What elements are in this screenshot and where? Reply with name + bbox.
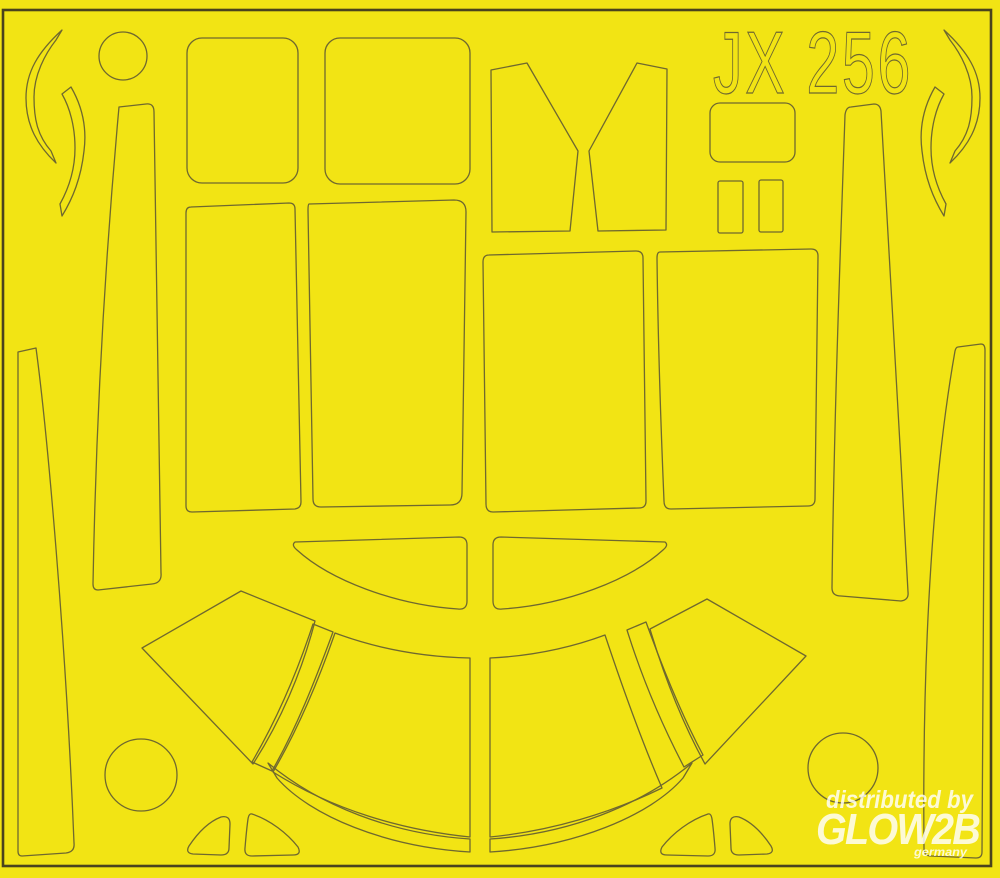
mask-piece-foot-3 [661, 814, 715, 856]
mask-piece-crescent-right-inner [921, 87, 946, 216]
mask-piece-strip-far-left [18, 348, 74, 856]
mask-piece-square-top-2 [325, 38, 470, 184]
mask-piece-strip-far-right [924, 344, 985, 858]
mask-piece-pillar-left [252, 624, 333, 771]
watermark-brand-country: germany [913, 845, 968, 859]
mask-piece-crescent-left-inner [60, 87, 85, 216]
mask-piece-foot-2 [245, 814, 299, 856]
mask-piece-pillar-right [627, 622, 703, 767]
mask-piece-small-rect-2 [759, 180, 783, 232]
mask-piece-circle-top-left [99, 32, 147, 80]
mask-piece-eyebrow-left [293, 537, 467, 609]
mask-piece-circle-bottom-left [105, 739, 177, 811]
mask-piece-eyebrow-right [493, 537, 667, 609]
mask-piece-strip-left-tall [93, 104, 161, 590]
mask-piece-rect-large-3 [483, 251, 646, 512]
mask-piece-foot-4 [730, 817, 772, 855]
mask-piece-thin-arc-right [490, 763, 692, 852]
mask-piece-crescent-right-outer [944, 30, 980, 163]
mask-sheet-graphic: JX 256 distributed by GLOW2B germany [0, 0, 1000, 878]
distributor-watermark: distributed by GLOW2B germany [816, 786, 980, 859]
mask-piece-rect-large-1 [186, 203, 301, 512]
mask-piece-windscreen-right-half [589, 63, 667, 231]
mask-piece-small-rect-1 [718, 181, 743, 233]
mask-piece-crescent-left-outer [26, 30, 62, 163]
mask-piece-segment-center-right [490, 635, 662, 837]
mask-piece-windscreen-left-half [491, 63, 578, 232]
product-code: JX 256 [713, 13, 913, 112]
mask-sheet: JX 256 distributed by GLOW2B germany [0, 0, 1000, 878]
mask-piece-strip-right-tall [832, 104, 908, 601]
mask-piece-wedge-right [650, 599, 806, 764]
sheet-border-frame [3, 10, 991, 866]
mask-piece-foot-1 [188, 817, 230, 855]
mask-piece-rect-large-2 [308, 200, 466, 507]
mask-piece-square-top-1 [187, 38, 298, 183]
mask-piece-rect-large-4 [657, 249, 818, 509]
mask-piece-thin-arc-left [268, 763, 470, 852]
